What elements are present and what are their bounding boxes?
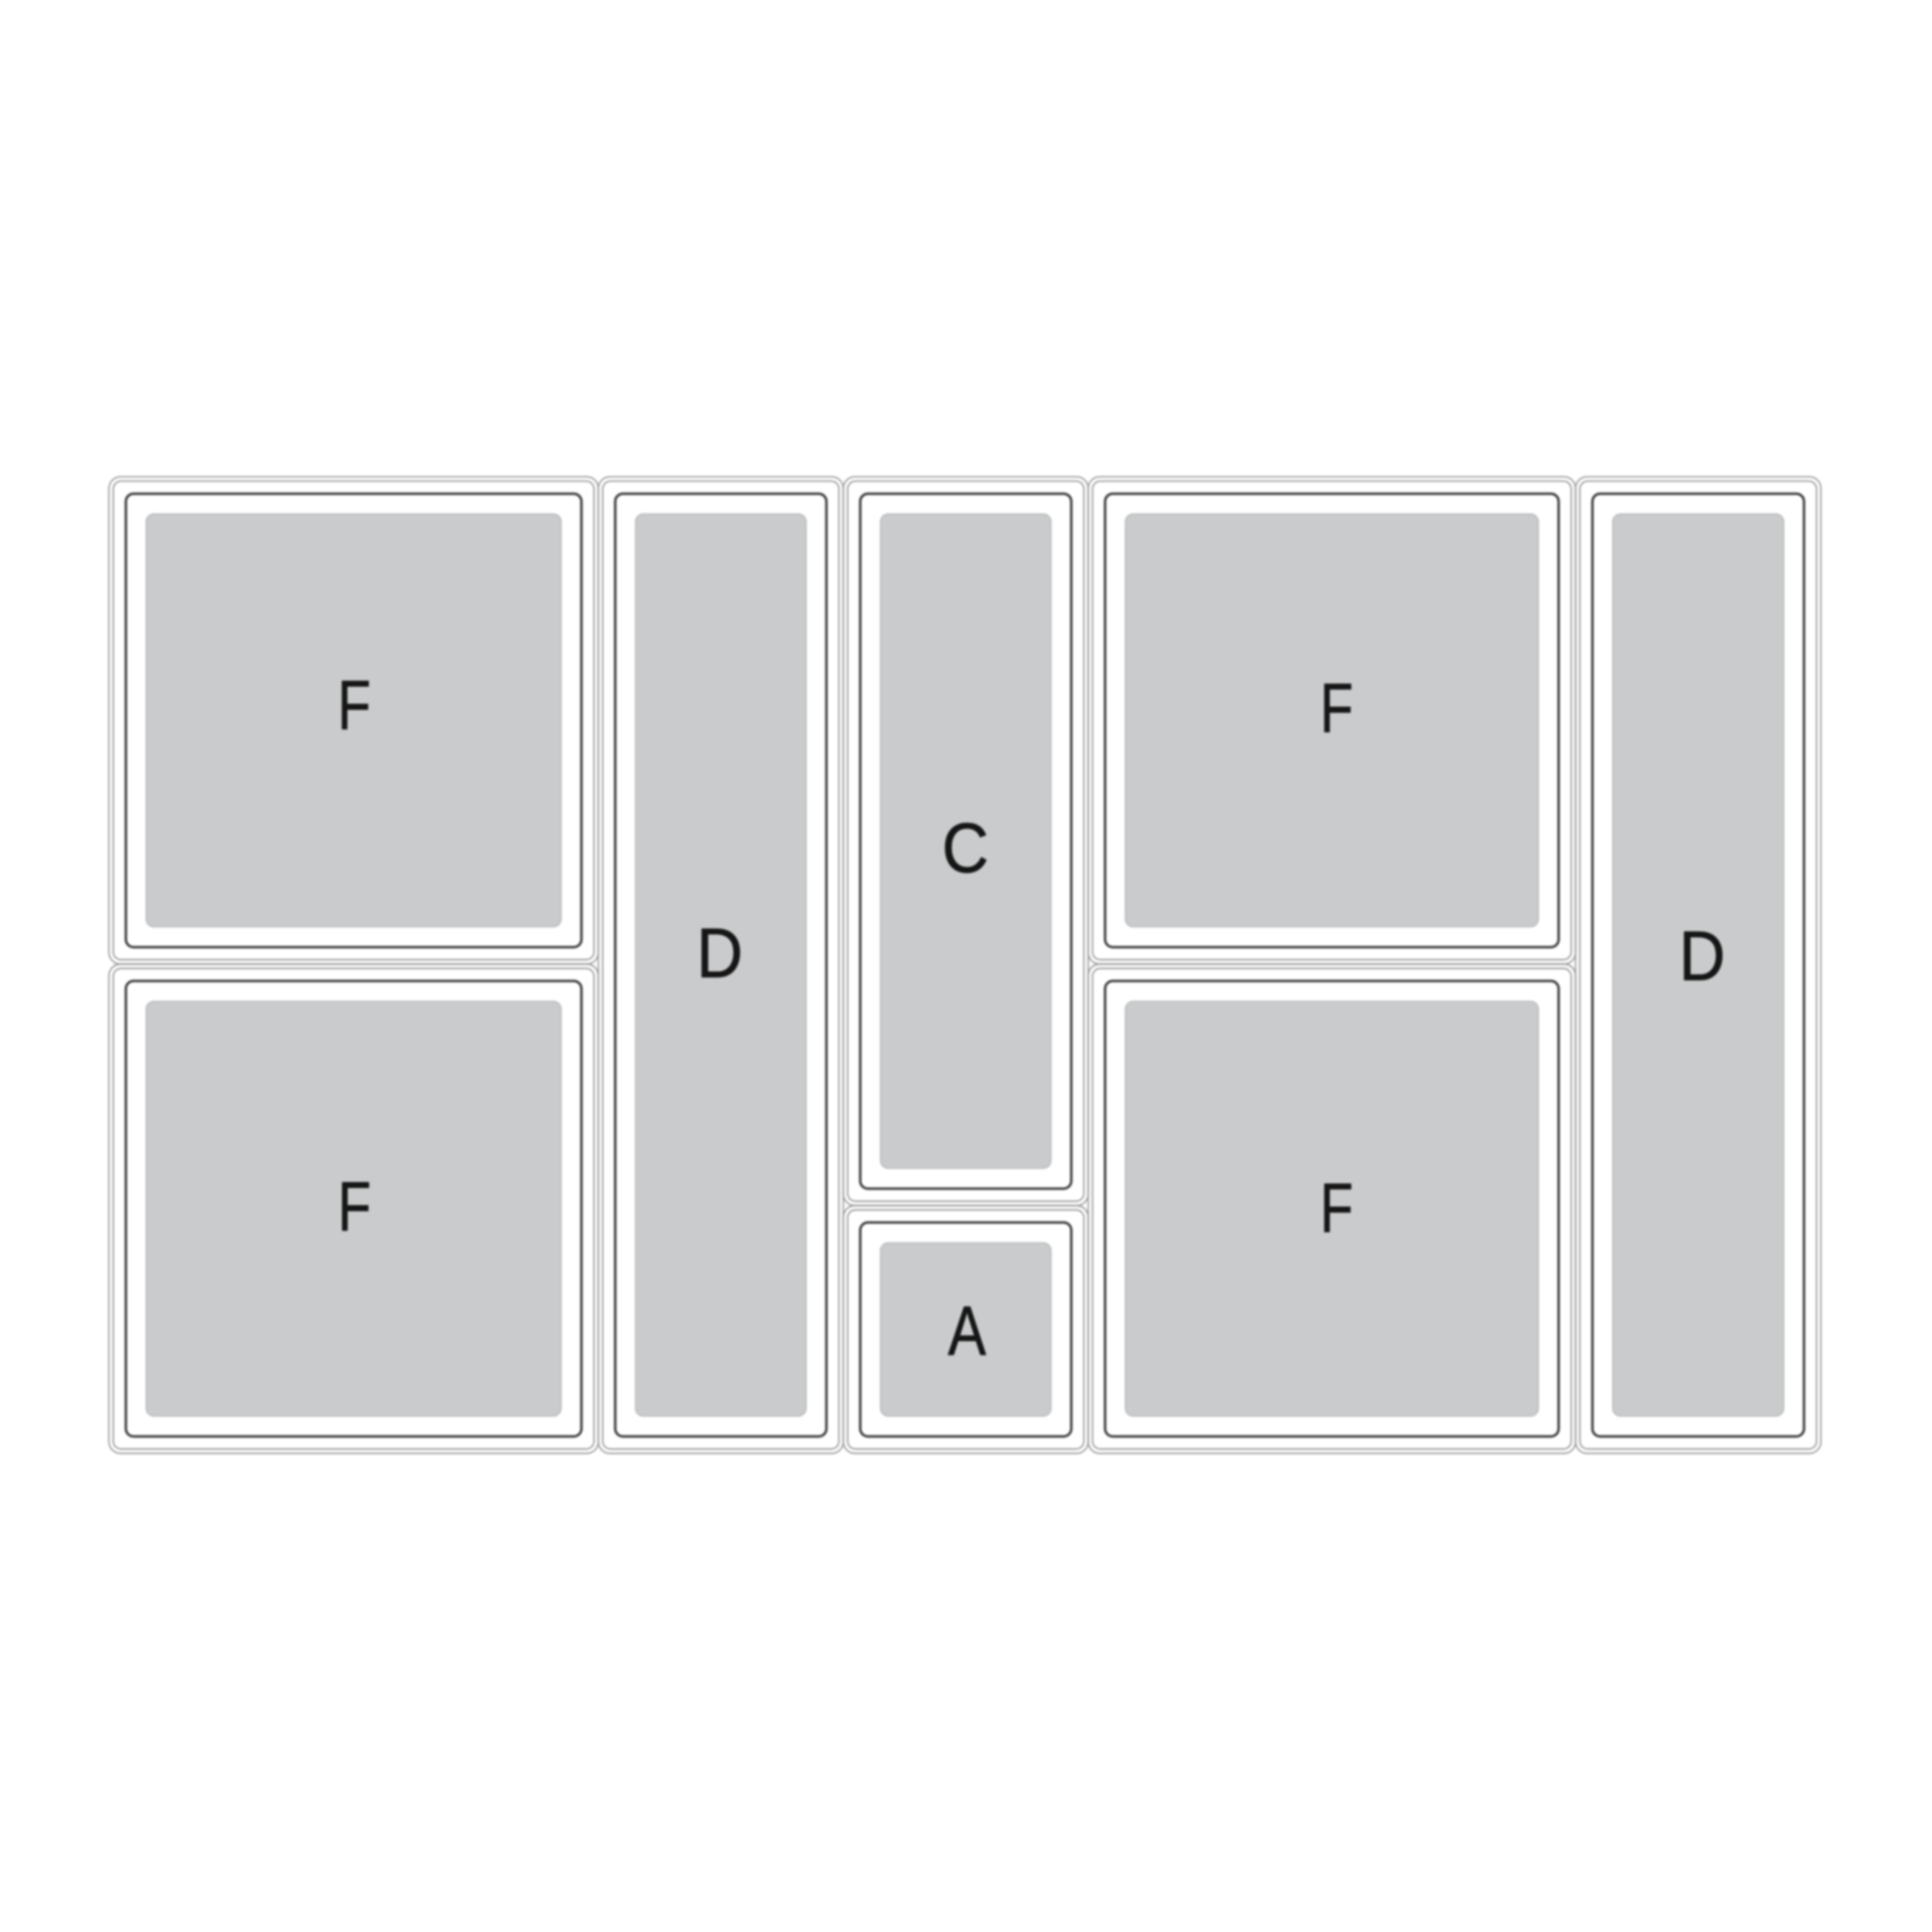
svg-text:C: C	[942, 810, 988, 888]
svg-text:D: D	[1679, 917, 1725, 995]
svg-text:F: F	[338, 1168, 371, 1245]
svg-text:F: F	[1321, 669, 1353, 747]
svg-text:A: A	[948, 1292, 985, 1370]
svg-text:F: F	[1320, 1169, 1352, 1246]
svg-text:F: F	[338, 667, 371, 744]
svg-text:D: D	[696, 914, 743, 992]
